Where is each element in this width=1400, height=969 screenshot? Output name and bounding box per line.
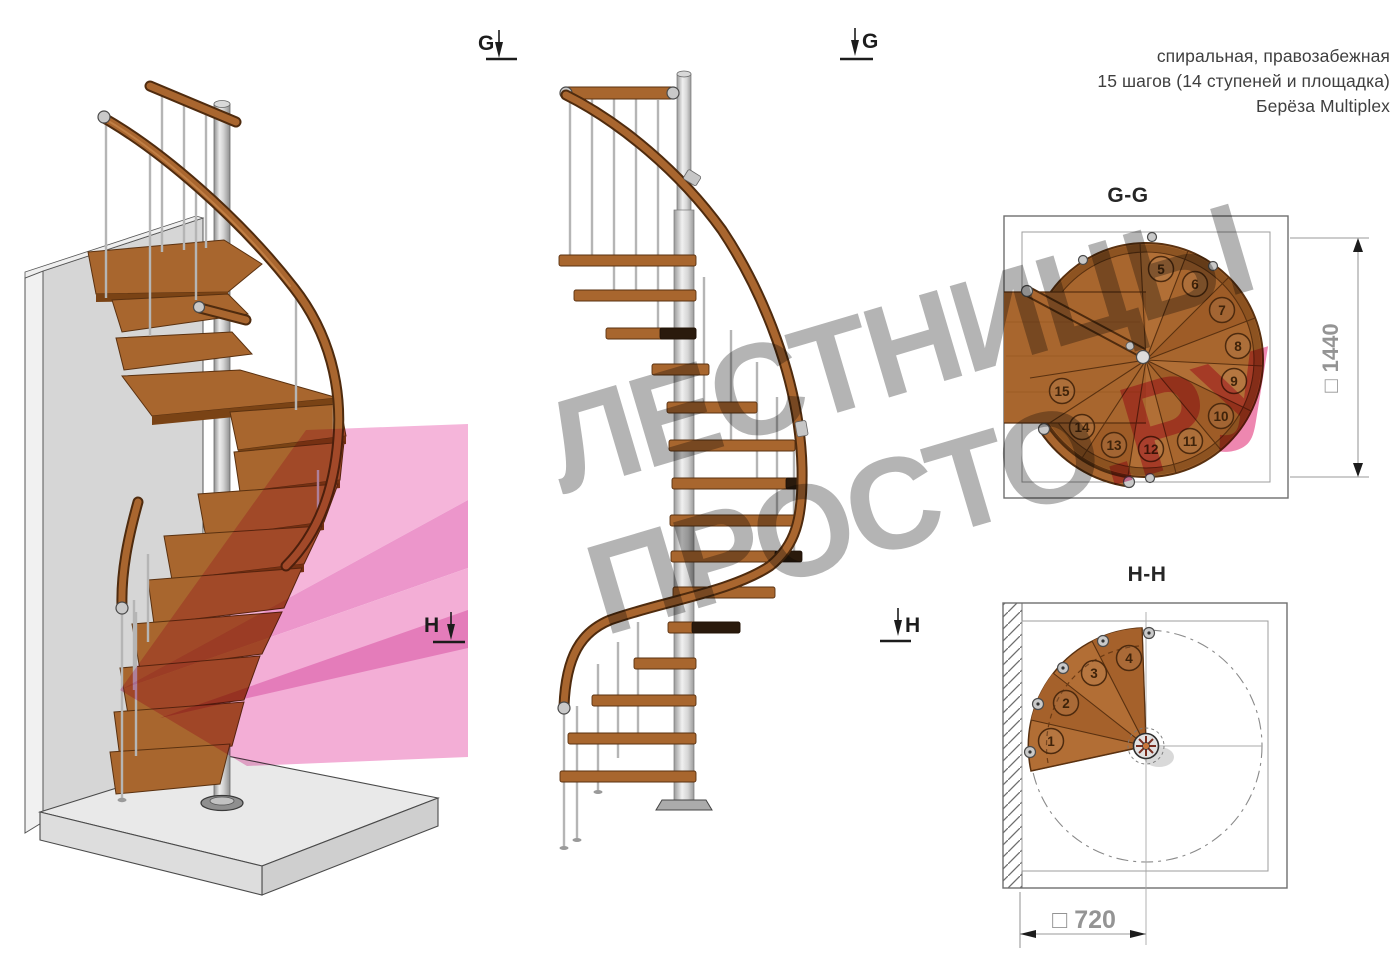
svg-text:8: 8	[1234, 339, 1242, 354]
dimension-1440: □1440	[1290, 238, 1369, 477]
svg-text:1: 1	[1047, 734, 1055, 749]
svg-text:3: 3	[1090, 666, 1098, 681]
view-3d-perspective	[15, 60, 470, 905]
spec-line-steps: 15 шагов (14 ступеней и площадка)	[1097, 69, 1390, 94]
plan-gg-title: G-G	[1063, 184, 1193, 208]
svg-text:5: 5	[1157, 262, 1165, 277]
section-marker-h-left: H	[420, 606, 476, 650]
marker-g-letter: G	[478, 32, 494, 55]
view-side-elevation	[540, 70, 885, 860]
dim-1440-label: □1440	[1318, 323, 1343, 392]
spec-header: спиральная, правозабежная 15 шагов (14 с…	[1097, 44, 1390, 119]
section-marker-g-left: G	[470, 26, 526, 68]
svg-text:13: 13	[1106, 438, 1122, 453]
stair-disc	[1004, 233, 1263, 488]
svg-text:14: 14	[1074, 420, 1090, 435]
pole-center	[1137, 351, 1150, 364]
svg-text:4: 4	[1125, 651, 1133, 666]
spec-line-material: Берёза Multiplex	[1097, 94, 1390, 119]
plan-section-gg: □1440	[995, 210, 1400, 510]
marker-h-letter: H	[905, 614, 920, 637]
svg-text:12: 12	[1143, 442, 1158, 457]
svg-text:10: 10	[1213, 409, 1228, 424]
svg-text:11: 11	[1183, 434, 1198, 449]
marker-g-letter: G	[862, 30, 878, 53]
svg-text:6: 6	[1191, 277, 1199, 292]
dim-720-label: □720	[1052, 906, 1116, 934]
marker-h-letter: H	[424, 614, 439, 637]
svg-text:9: 9	[1230, 374, 1238, 389]
svg-text:7: 7	[1218, 303, 1226, 318]
svg-text:2: 2	[1062, 696, 1070, 711]
dimension-720: □720	[1020, 892, 1146, 948]
spec-line-type: спиральная, правозабежная	[1097, 44, 1390, 69]
drawing-canvas: □1440	[0, 0, 1400, 969]
section-marker-g-right: G	[836, 24, 892, 66]
plan-hh-title: H-H	[1082, 563, 1212, 587]
svg-text:15: 15	[1054, 384, 1070, 399]
section-marker-h-right: H	[874, 604, 930, 648]
steps	[559, 255, 802, 782]
plan-section-hh: 1 2 3 4 □720	[995, 596, 1295, 968]
